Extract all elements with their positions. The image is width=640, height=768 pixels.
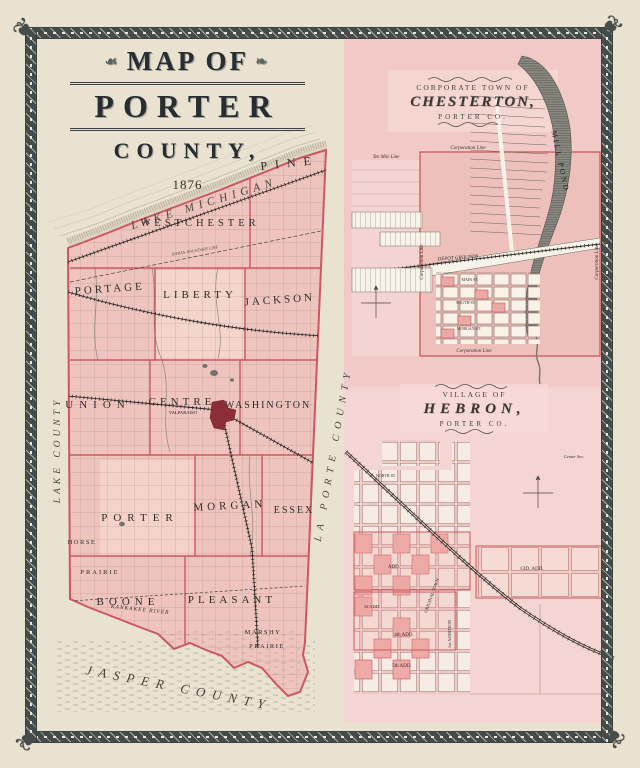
atlas-page: { "title": { "kicker": "MAP OF", "name":… xyxy=(0,0,640,768)
flourish-icon xyxy=(435,384,515,389)
chesterton-title-block: CORPORATE TOWN OF CHESTERTON, PORTER CO. xyxy=(378,76,568,128)
corporation-line-bottom-label: Corporation Line xyxy=(456,349,492,354)
fifth-add-label: 5th ADD. xyxy=(392,664,411,669)
frame-left-band xyxy=(26,28,36,742)
flourish-icon xyxy=(428,77,518,82)
essex-township-label: ESSEX xyxy=(274,505,315,516)
first-addition-label: 1st ADDITION xyxy=(447,619,452,648)
horse-prairie-label: HORSE xyxy=(68,539,97,546)
valparaiso-label: VALPARAISO xyxy=(169,410,198,415)
center-sec-label: Center Sec. xyxy=(564,454,585,459)
centre-township-label: CENTRE xyxy=(149,396,216,408)
marshy-prairie-label: PRAIRIE xyxy=(249,643,285,650)
chesterton-name: CHESTERTON, xyxy=(378,94,568,111)
flourish-icon xyxy=(445,429,505,434)
marshy-label: MARSHY xyxy=(245,629,282,636)
hebron-subtitle: PORTER CO. xyxy=(392,420,557,428)
gid-add-label: GID. ADD. xyxy=(520,567,543,572)
frame-top-band xyxy=(26,28,612,38)
chesterton-subtitle: PORTER CO. xyxy=(378,113,568,121)
corporation-line-top-label: Corporation Line xyxy=(450,146,486,151)
corporation-line-left-label: Corporation Line xyxy=(420,244,425,280)
frame-bottom-band xyxy=(26,732,612,742)
frame-right-band xyxy=(602,28,612,742)
morgan-st-label: MORGAN ST. xyxy=(457,326,481,331)
ten-mile-line-label: Ten Mile Line xyxy=(373,155,400,160)
title-year: 1876 xyxy=(70,177,305,193)
title-kicker: MAP OF xyxy=(70,46,305,77)
liberty-township-label: LIBERTY xyxy=(163,289,237,301)
main-st-label: MAIN ST. xyxy=(461,277,478,282)
corporation-line-right-label: Corporation Line xyxy=(595,244,600,280)
flourish-icon xyxy=(438,122,508,127)
chesterton-kicker: CORPORATE TOWN OF xyxy=(378,83,568,92)
porter-township-label: PORTER xyxy=(101,512,179,524)
hebron-name: HEBRON, xyxy=(392,401,557,418)
title-county-name: PORTER xyxy=(70,82,305,131)
lake-county-label: LAKE COUNTY xyxy=(53,397,63,505)
north-st-label: NORTH ST. xyxy=(376,473,396,478)
hebron-kicker: VILLAGE OF xyxy=(392,390,557,399)
add-label: ADD. xyxy=(388,565,400,570)
prairie-label: PRAIRIE xyxy=(80,569,119,576)
south-st-label: SOUTH ST. xyxy=(456,300,476,305)
union-township-label: UNION xyxy=(65,399,130,411)
title-cartouche: MAP OF PORTER COUNTY, 1876 xyxy=(70,46,305,193)
fourth-add-label: 4th ADD. xyxy=(394,633,413,638)
westchester-township-label: WESTCHESTER xyxy=(140,218,259,229)
title-county-suffix: COUNTY, xyxy=(70,138,305,164)
hebron-title-block: VILLAGE OF HEBRON, PORTER CO. xyxy=(392,383,557,435)
third-add-label: 3d ADD. xyxy=(364,604,380,609)
washington-township-label: WASHINGTON xyxy=(225,400,311,411)
pleasant-township-label: PLEASANT xyxy=(188,594,276,606)
